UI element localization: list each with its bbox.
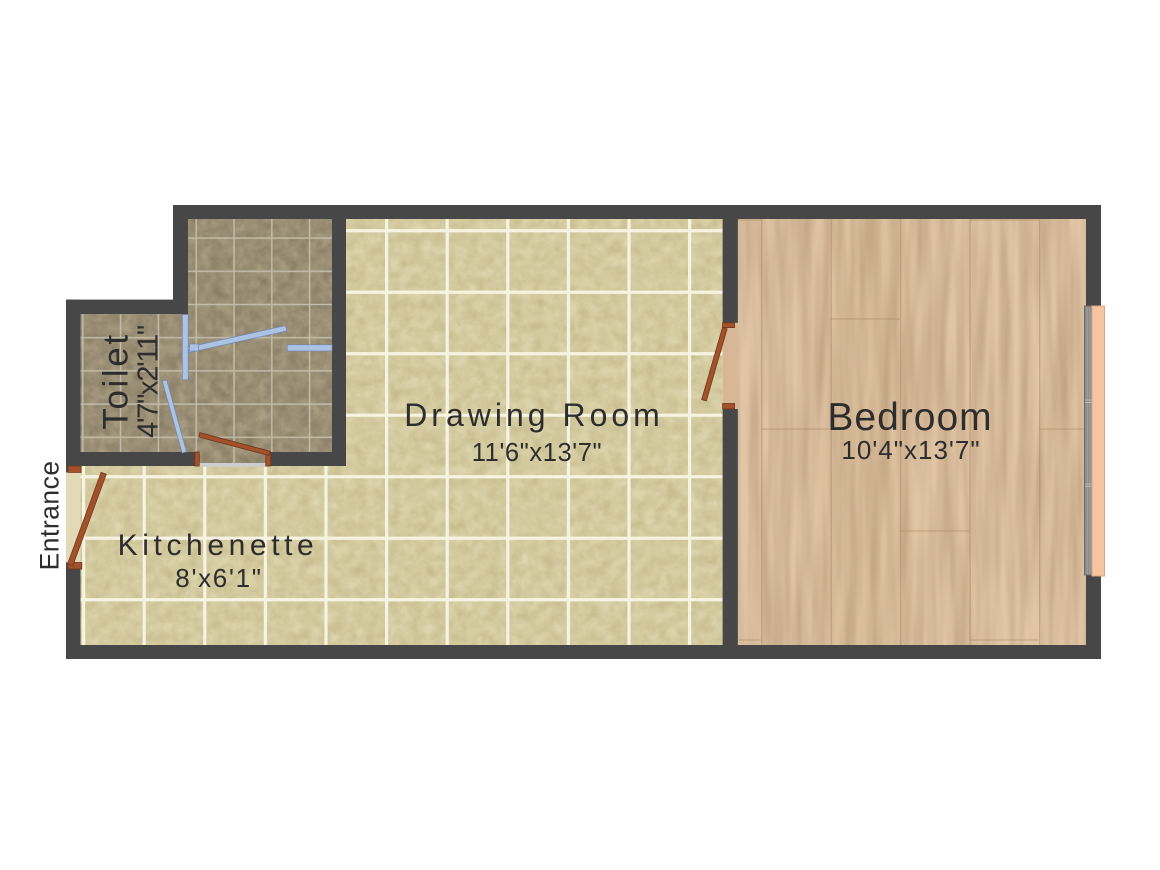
svg-text:Drawing Room: Drawing Room — [404, 397, 664, 433]
svg-text:Entrance: Entrance — [35, 460, 65, 570]
svg-text:10'4"x13'7": 10'4"x13'7" — [841, 435, 980, 465]
svg-text:Toilet: Toilet — [97, 332, 136, 429]
svg-text:Kitchenette: Kitchenette — [118, 529, 319, 562]
svg-text:4'7"x2'11": 4'7"x2'11" — [133, 325, 165, 438]
svg-text:8'x6'1": 8'x6'1" — [175, 563, 262, 593]
svg-text:11'6"x13'7": 11'6"x13'7" — [472, 439, 602, 467]
svg-text:Bedroom: Bedroom — [827, 396, 992, 439]
